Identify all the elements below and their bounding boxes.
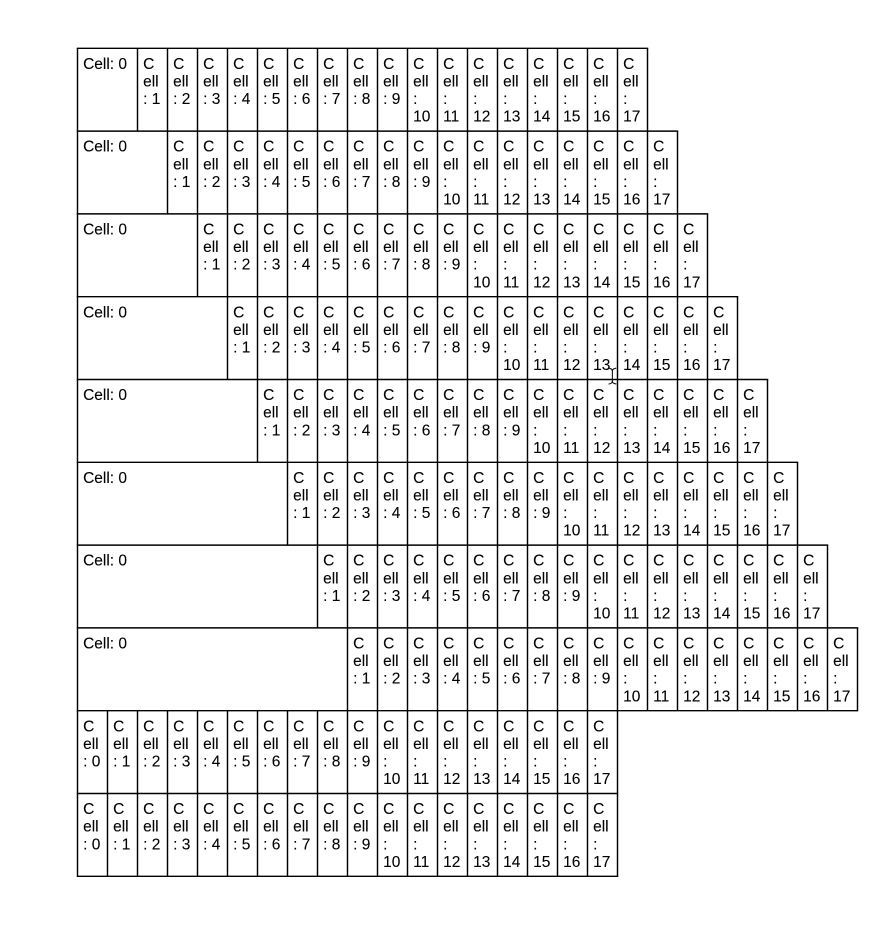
svg-text:12: 12: [593, 440, 610, 457]
svg-text:C: C: [533, 139, 544, 156]
svg-text:C: C: [683, 636, 694, 653]
svg-text:ell: ell: [653, 239, 669, 256]
svg-text:12: 12: [443, 771, 460, 788]
svg-text:C: C: [533, 304, 544, 321]
svg-text:: 9: : 9: [383, 91, 400, 108]
svg-text:ell: ell: [443, 405, 459, 422]
svg-text:17: 17: [593, 771, 610, 788]
svg-text:14: 14: [683, 523, 701, 540]
svg-text:ell: ell: [473, 322, 489, 339]
svg-text:: 1: : 1: [143, 91, 160, 108]
svg-text:ell: ell: [503, 405, 519, 422]
svg-text:ell: ell: [533, 74, 549, 91]
svg-text:: 4: : 4: [413, 588, 431, 605]
svg-text:C: C: [503, 470, 514, 487]
svg-text:C: C: [803, 636, 814, 653]
svg-text:C: C: [713, 387, 724, 404]
svg-text:C: C: [563, 56, 574, 73]
svg-text:17: 17: [683, 274, 700, 291]
svg-text:C: C: [383, 801, 394, 818]
svg-text::: :: [653, 257, 657, 274]
svg-text:ell: ell: [503, 488, 519, 505]
svg-text:ell: ell: [503, 736, 519, 753]
svg-text:C: C: [413, 718, 424, 735]
svg-text:11: 11: [563, 440, 579, 457]
svg-text:C: C: [293, 387, 304, 404]
svg-text:C: C: [323, 470, 334, 487]
svg-text:ell: ell: [563, 570, 579, 587]
svg-text:ell: ell: [323, 322, 339, 339]
svg-text:ell: ell: [593, 239, 609, 256]
svg-text:C: C: [503, 139, 514, 156]
svg-text:ell: ell: [353, 653, 369, 670]
svg-text:: 5: : 5: [293, 174, 310, 191]
svg-text:ell: ell: [593, 570, 609, 587]
svg-text:C: C: [443, 470, 454, 487]
svg-text:C: C: [593, 718, 604, 735]
svg-text:C: C: [653, 470, 664, 487]
svg-text:ell: ell: [533, 653, 549, 670]
svg-text:ell: ell: [263, 322, 279, 339]
svg-text:C: C: [143, 718, 154, 735]
svg-text:ell: ell: [563, 819, 579, 836]
svg-text::: :: [623, 505, 627, 522]
svg-text:C: C: [263, 222, 274, 239]
svg-text::: :: [833, 671, 837, 688]
svg-text::: :: [473, 754, 477, 771]
svg-text:ell: ell: [743, 570, 759, 587]
svg-text:ell: ell: [293, 819, 309, 836]
svg-text::: :: [383, 836, 387, 853]
svg-text:C: C: [503, 387, 514, 404]
svg-text:: 9: : 9: [353, 836, 370, 853]
svg-text:C: C: [533, 718, 544, 735]
svg-text:C: C: [383, 222, 394, 239]
svg-text:C: C: [443, 222, 454, 239]
svg-text::: :: [623, 91, 627, 108]
svg-text:C: C: [233, 222, 244, 239]
svg-text:: 7: : 7: [293, 836, 310, 853]
svg-text:C: C: [653, 636, 664, 653]
svg-text:: 4: : 4: [293, 257, 311, 274]
svg-text:12: 12: [653, 606, 670, 623]
svg-text:C: C: [563, 553, 574, 570]
svg-text:ell: ell: [533, 488, 549, 505]
svg-text:ell: ell: [533, 570, 549, 587]
svg-text::: :: [443, 174, 447, 191]
svg-text::: :: [773, 671, 777, 688]
svg-text:ell: ell: [383, 488, 399, 505]
svg-text:C: C: [653, 553, 664, 570]
svg-text:Cell: 0: Cell: 0: [83, 387, 127, 404]
svg-text::: :: [563, 754, 567, 771]
svg-text:: 5: : 5: [263, 91, 280, 108]
svg-text::: :: [413, 754, 417, 771]
svg-text:ell: ell: [173, 819, 189, 836]
svg-text::: :: [593, 91, 597, 108]
svg-text:: 6: : 6: [413, 422, 430, 439]
svg-text:: 4: : 4: [263, 174, 281, 191]
svg-text:ell: ell: [623, 405, 639, 422]
svg-text:C: C: [293, 470, 304, 487]
svg-text:ell: ell: [683, 239, 699, 256]
svg-text:11: 11: [443, 109, 459, 126]
svg-text:C: C: [563, 139, 574, 156]
svg-text:C: C: [233, 304, 244, 321]
svg-text:C: C: [773, 636, 784, 653]
svg-text:ell: ell: [473, 74, 489, 91]
svg-text:ell: ell: [263, 74, 279, 91]
svg-text:C: C: [533, 222, 544, 239]
svg-text:ell: ell: [503, 74, 519, 91]
svg-text:C: C: [413, 304, 424, 321]
svg-text:C: C: [383, 56, 394, 73]
svg-text:C: C: [293, 56, 304, 73]
svg-text:12: 12: [473, 109, 490, 126]
svg-text::: :: [623, 174, 627, 191]
svg-text:ell: ell: [473, 736, 489, 753]
svg-text::: :: [623, 340, 627, 357]
svg-text:: 1: : 1: [293, 505, 310, 522]
svg-text:12: 12: [623, 523, 640, 540]
svg-text:C: C: [293, 304, 304, 321]
svg-text:11: 11: [593, 523, 609, 540]
svg-text:ell: ell: [683, 653, 699, 670]
svg-text:C: C: [83, 718, 94, 735]
svg-text:10: 10: [383, 771, 401, 788]
svg-text:: 2: : 2: [143, 754, 160, 771]
svg-text:C: C: [533, 553, 544, 570]
svg-text:: 7: : 7: [353, 174, 370, 191]
svg-text:C: C: [293, 801, 304, 818]
svg-text:ell: ell: [653, 156, 669, 173]
svg-text:: 1: : 1: [203, 257, 220, 274]
svg-text::: :: [503, 257, 507, 274]
svg-text::: :: [683, 422, 687, 439]
svg-text::: :: [563, 257, 567, 274]
svg-text::: :: [473, 174, 477, 191]
svg-text:C: C: [443, 801, 454, 818]
svg-text:: 9: : 9: [473, 340, 490, 357]
svg-text:ell: ell: [563, 405, 579, 422]
svg-text:C: C: [353, 718, 364, 735]
svg-text:ell: ell: [413, 239, 429, 256]
svg-text:17: 17: [743, 440, 760, 457]
svg-text::: :: [503, 836, 507, 853]
svg-text:C: C: [683, 222, 694, 239]
svg-text::: :: [593, 754, 597, 771]
svg-text:13: 13: [563, 274, 580, 291]
svg-text:: 7: : 7: [503, 588, 520, 605]
svg-text:C: C: [503, 56, 514, 73]
svg-text:11: 11: [623, 606, 639, 623]
svg-text:ell: ell: [773, 488, 789, 505]
svg-text:ell: ell: [353, 736, 369, 753]
svg-text:C: C: [263, 718, 274, 735]
svg-text:: 1: : 1: [113, 754, 130, 771]
svg-text:ell: ell: [503, 156, 519, 173]
svg-text:: 9: : 9: [593, 671, 610, 688]
svg-text:C: C: [623, 56, 634, 73]
svg-text:: 2: : 2: [143, 836, 160, 853]
svg-text:C: C: [383, 553, 394, 570]
svg-text:C: C: [503, 718, 514, 735]
svg-text::: :: [473, 836, 477, 853]
svg-text:C: C: [743, 387, 754, 404]
svg-text::: :: [803, 588, 807, 605]
svg-text:ell: ell: [413, 653, 429, 670]
svg-text:Cell: 0: Cell: 0: [83, 636, 127, 653]
svg-text:: 4: : 4: [323, 340, 341, 357]
svg-text:ell: ell: [323, 239, 339, 256]
svg-text:C: C: [263, 139, 274, 156]
svg-text:16: 16: [773, 606, 790, 623]
svg-text:C: C: [743, 470, 754, 487]
svg-text:15: 15: [653, 357, 670, 374]
svg-text:ell: ell: [413, 405, 429, 422]
svg-text:: 0: : 0: [83, 836, 101, 853]
svg-text:C: C: [443, 718, 454, 735]
svg-text:17: 17: [803, 606, 820, 623]
svg-text:C: C: [623, 636, 634, 653]
svg-text:ell: ell: [323, 570, 339, 587]
svg-text:10: 10: [383, 854, 401, 871]
svg-text:C: C: [413, 387, 424, 404]
svg-text:ell: ell: [443, 488, 459, 505]
svg-text:ell: ell: [353, 570, 369, 587]
svg-text:: 8: : 8: [413, 257, 430, 274]
svg-text:13: 13: [713, 688, 730, 705]
svg-text:: 1: : 1: [323, 588, 340, 605]
svg-text:10: 10: [473, 274, 491, 291]
svg-text:: 7: : 7: [383, 257, 400, 274]
svg-text:ell: ell: [143, 74, 159, 91]
svg-text::: :: [563, 91, 567, 108]
svg-text:ell: ell: [203, 736, 219, 753]
svg-text:11: 11: [503, 274, 519, 291]
svg-text:: 3: : 3: [263, 257, 280, 274]
svg-text:C: C: [473, 304, 484, 321]
svg-text:ell: ell: [353, 74, 369, 91]
svg-text:: 7: : 7: [533, 671, 550, 688]
svg-text:C: C: [233, 801, 244, 818]
svg-text:ell: ell: [563, 736, 579, 753]
svg-text:10: 10: [623, 688, 641, 705]
svg-text:16: 16: [563, 771, 580, 788]
svg-text:ell: ell: [383, 736, 399, 753]
svg-text:C: C: [563, 470, 574, 487]
svg-text::: :: [713, 671, 717, 688]
svg-text:: 6: : 6: [383, 340, 400, 357]
svg-text:ell: ell: [83, 819, 99, 836]
svg-text:: 9: : 9: [563, 588, 580, 605]
svg-text:ell: ell: [743, 488, 759, 505]
svg-text:: 8: : 8: [473, 422, 490, 439]
svg-text::: :: [683, 671, 687, 688]
svg-text:C: C: [233, 718, 244, 735]
svg-text::: :: [503, 174, 507, 191]
svg-text:C: C: [593, 553, 604, 570]
svg-text:: 3: : 3: [173, 836, 190, 853]
svg-text:C: C: [263, 304, 274, 321]
svg-text::: :: [593, 340, 597, 357]
svg-text:12: 12: [563, 357, 580, 374]
svg-text:: 8: : 8: [383, 174, 400, 191]
svg-text:C: C: [113, 801, 124, 818]
svg-text:ell: ell: [233, 736, 249, 753]
svg-text:ell: ell: [593, 653, 609, 670]
svg-text::: :: [593, 588, 597, 605]
svg-text:C: C: [353, 304, 364, 321]
svg-text::: :: [443, 754, 447, 771]
svg-text:13: 13: [533, 192, 550, 209]
svg-text:ell: ell: [323, 736, 339, 753]
svg-text:Cell: 0: Cell: 0: [83, 222, 127, 239]
svg-text:ell: ell: [143, 819, 159, 836]
svg-text:ell: ell: [473, 239, 489, 256]
svg-text:ell: ell: [713, 322, 729, 339]
svg-text:ell: ell: [593, 488, 609, 505]
svg-text:ell: ell: [413, 156, 429, 173]
svg-text:ell: ell: [413, 736, 429, 753]
svg-text:C: C: [413, 553, 424, 570]
svg-text:ell: ell: [113, 819, 129, 836]
svg-text:ell: ell: [353, 819, 369, 836]
svg-text::: :: [743, 505, 747, 522]
svg-text:: 4: : 4: [203, 836, 221, 853]
svg-text:ell: ell: [323, 156, 339, 173]
svg-text:16: 16: [653, 274, 670, 291]
svg-text::: :: [593, 422, 597, 439]
svg-text:ell: ell: [263, 736, 279, 753]
svg-text:C: C: [473, 470, 484, 487]
svg-text:: 2: : 2: [173, 91, 190, 108]
svg-text:: 7: : 7: [413, 340, 430, 357]
svg-text:C: C: [473, 56, 484, 73]
svg-text:C: C: [473, 222, 484, 239]
svg-text:ell: ell: [473, 570, 489, 587]
svg-text:ell: ell: [293, 156, 309, 173]
svg-text:C: C: [203, 801, 214, 818]
svg-text:C: C: [353, 470, 364, 487]
svg-text:13: 13: [623, 440, 640, 457]
svg-text:: 2: : 2: [383, 671, 400, 688]
svg-text::: :: [413, 836, 417, 853]
svg-text:: 3: : 3: [293, 340, 310, 357]
svg-text:C: C: [473, 139, 484, 156]
svg-text:: 5: : 5: [443, 588, 460, 605]
svg-text:: 2: : 2: [323, 505, 340, 522]
svg-text:ell: ell: [503, 322, 519, 339]
svg-text:: 6: : 6: [323, 174, 340, 191]
svg-text:10: 10: [563, 523, 581, 540]
svg-text:: 8: : 8: [533, 588, 550, 605]
svg-text:C: C: [443, 56, 454, 73]
svg-text:15: 15: [743, 606, 760, 623]
svg-text::: :: [653, 588, 657, 605]
svg-text::: :: [383, 754, 387, 771]
svg-text:ell: ell: [623, 653, 639, 670]
svg-text:C: C: [473, 718, 484, 735]
svg-text:C: C: [383, 304, 394, 321]
svg-text:C: C: [413, 470, 424, 487]
svg-text:: 4: : 4: [353, 422, 371, 439]
svg-text:ell: ell: [563, 488, 579, 505]
svg-text:ell: ell: [203, 239, 219, 256]
svg-text:Cell: 0: Cell: 0: [83, 470, 127, 487]
svg-text:: 7: : 7: [293, 754, 310, 771]
svg-text::: :: [533, 91, 537, 108]
svg-text:17: 17: [713, 357, 730, 374]
svg-text:C: C: [353, 139, 364, 156]
svg-text:C: C: [413, 636, 424, 653]
svg-text:ell: ell: [383, 156, 399, 173]
svg-text:C: C: [533, 801, 544, 818]
svg-text:13: 13: [503, 109, 520, 126]
svg-text:ell: ell: [653, 405, 669, 422]
svg-text:C: C: [323, 139, 334, 156]
svg-text:Cell: 0: Cell: 0: [83, 304, 127, 321]
svg-text:: 2: : 2: [353, 588, 370, 605]
svg-text:C: C: [533, 470, 544, 487]
svg-text:12: 12: [443, 854, 460, 871]
svg-text:16: 16: [713, 440, 730, 457]
svg-text:: 3: : 3: [173, 754, 190, 771]
svg-text:: 7: : 7: [323, 91, 340, 108]
svg-text:C: C: [623, 387, 634, 404]
svg-text:C: C: [443, 139, 454, 156]
svg-text::: :: [503, 754, 507, 771]
svg-text::: :: [743, 588, 747, 605]
svg-text:ell: ell: [293, 322, 309, 339]
svg-text:ell: ell: [413, 819, 429, 836]
svg-text:C: C: [203, 222, 214, 239]
svg-text:C: C: [203, 139, 214, 156]
svg-text:C: C: [713, 304, 724, 321]
svg-text:ell: ell: [83, 736, 99, 753]
svg-text:16: 16: [593, 109, 610, 126]
svg-text:12: 12: [683, 688, 700, 705]
svg-text:15: 15: [533, 854, 550, 871]
svg-text::: :: [653, 340, 657, 357]
svg-text:: 9: : 9: [353, 754, 370, 771]
svg-text:: 3: : 3: [233, 174, 250, 191]
svg-text::: :: [503, 91, 507, 108]
svg-text:ell: ell: [533, 322, 549, 339]
svg-text:ell: ell: [293, 74, 309, 91]
svg-text:C: C: [263, 801, 274, 818]
svg-text::: :: [593, 257, 597, 274]
svg-text:ell: ell: [503, 653, 519, 670]
svg-text:15: 15: [533, 771, 550, 788]
svg-text:14: 14: [563, 192, 581, 209]
svg-text:: 6: : 6: [353, 257, 370, 274]
svg-text:ell: ell: [533, 405, 549, 422]
svg-text:C: C: [623, 222, 634, 239]
svg-text:C: C: [683, 304, 694, 321]
svg-text:C: C: [173, 801, 184, 818]
svg-text:ell: ell: [233, 74, 249, 91]
svg-text:ell: ell: [353, 488, 369, 505]
svg-text:C: C: [653, 304, 664, 321]
svg-text:: 3: : 3: [413, 671, 430, 688]
svg-text:ell: ell: [233, 156, 249, 173]
svg-text::: :: [713, 588, 717, 605]
svg-text:ell: ell: [323, 819, 339, 836]
svg-text:C: C: [743, 553, 754, 570]
svg-text::: :: [443, 836, 447, 853]
svg-text::: :: [443, 91, 447, 108]
